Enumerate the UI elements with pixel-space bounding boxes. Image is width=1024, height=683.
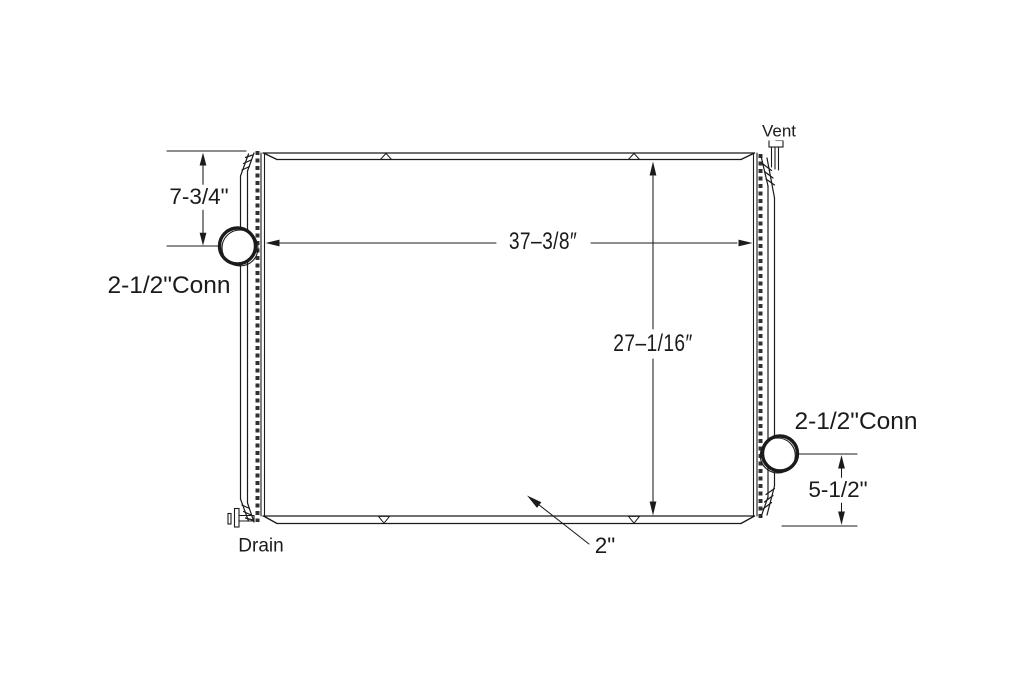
radiator-technical-drawing: Vent Drain 7-3/4" 2-1/2"Conn 37–3/8″ 27–… — [0, 0, 1024, 683]
outlet-height-dimension-label: 5-1/2" — [806, 478, 869, 503]
radiator-drawing-canvas — [0, 0, 1024, 683]
left-tank — [241, 153, 255, 522]
core-depth-dimension-label: 2" — [593, 534, 618, 559]
vent-label: Vent — [760, 122, 798, 141]
left-connection-port — [220, 228, 259, 266]
core-height-dimension-label: 27–1/16″ — [612, 331, 695, 357]
right-connection-label: 2-1/2"Conn — [792, 409, 919, 436]
left-connection-label: 2-1/2"Conn — [105, 273, 232, 300]
right-connection-port — [760, 436, 797, 473]
drain-label: Drain — [236, 536, 285, 557]
core-depth-leader — [527, 496, 589, 545]
inlet-height-dimension-label: 7-3/4" — [167, 185, 230, 210]
width-dimension-label: 37–3/8″ — [507, 229, 579, 255]
